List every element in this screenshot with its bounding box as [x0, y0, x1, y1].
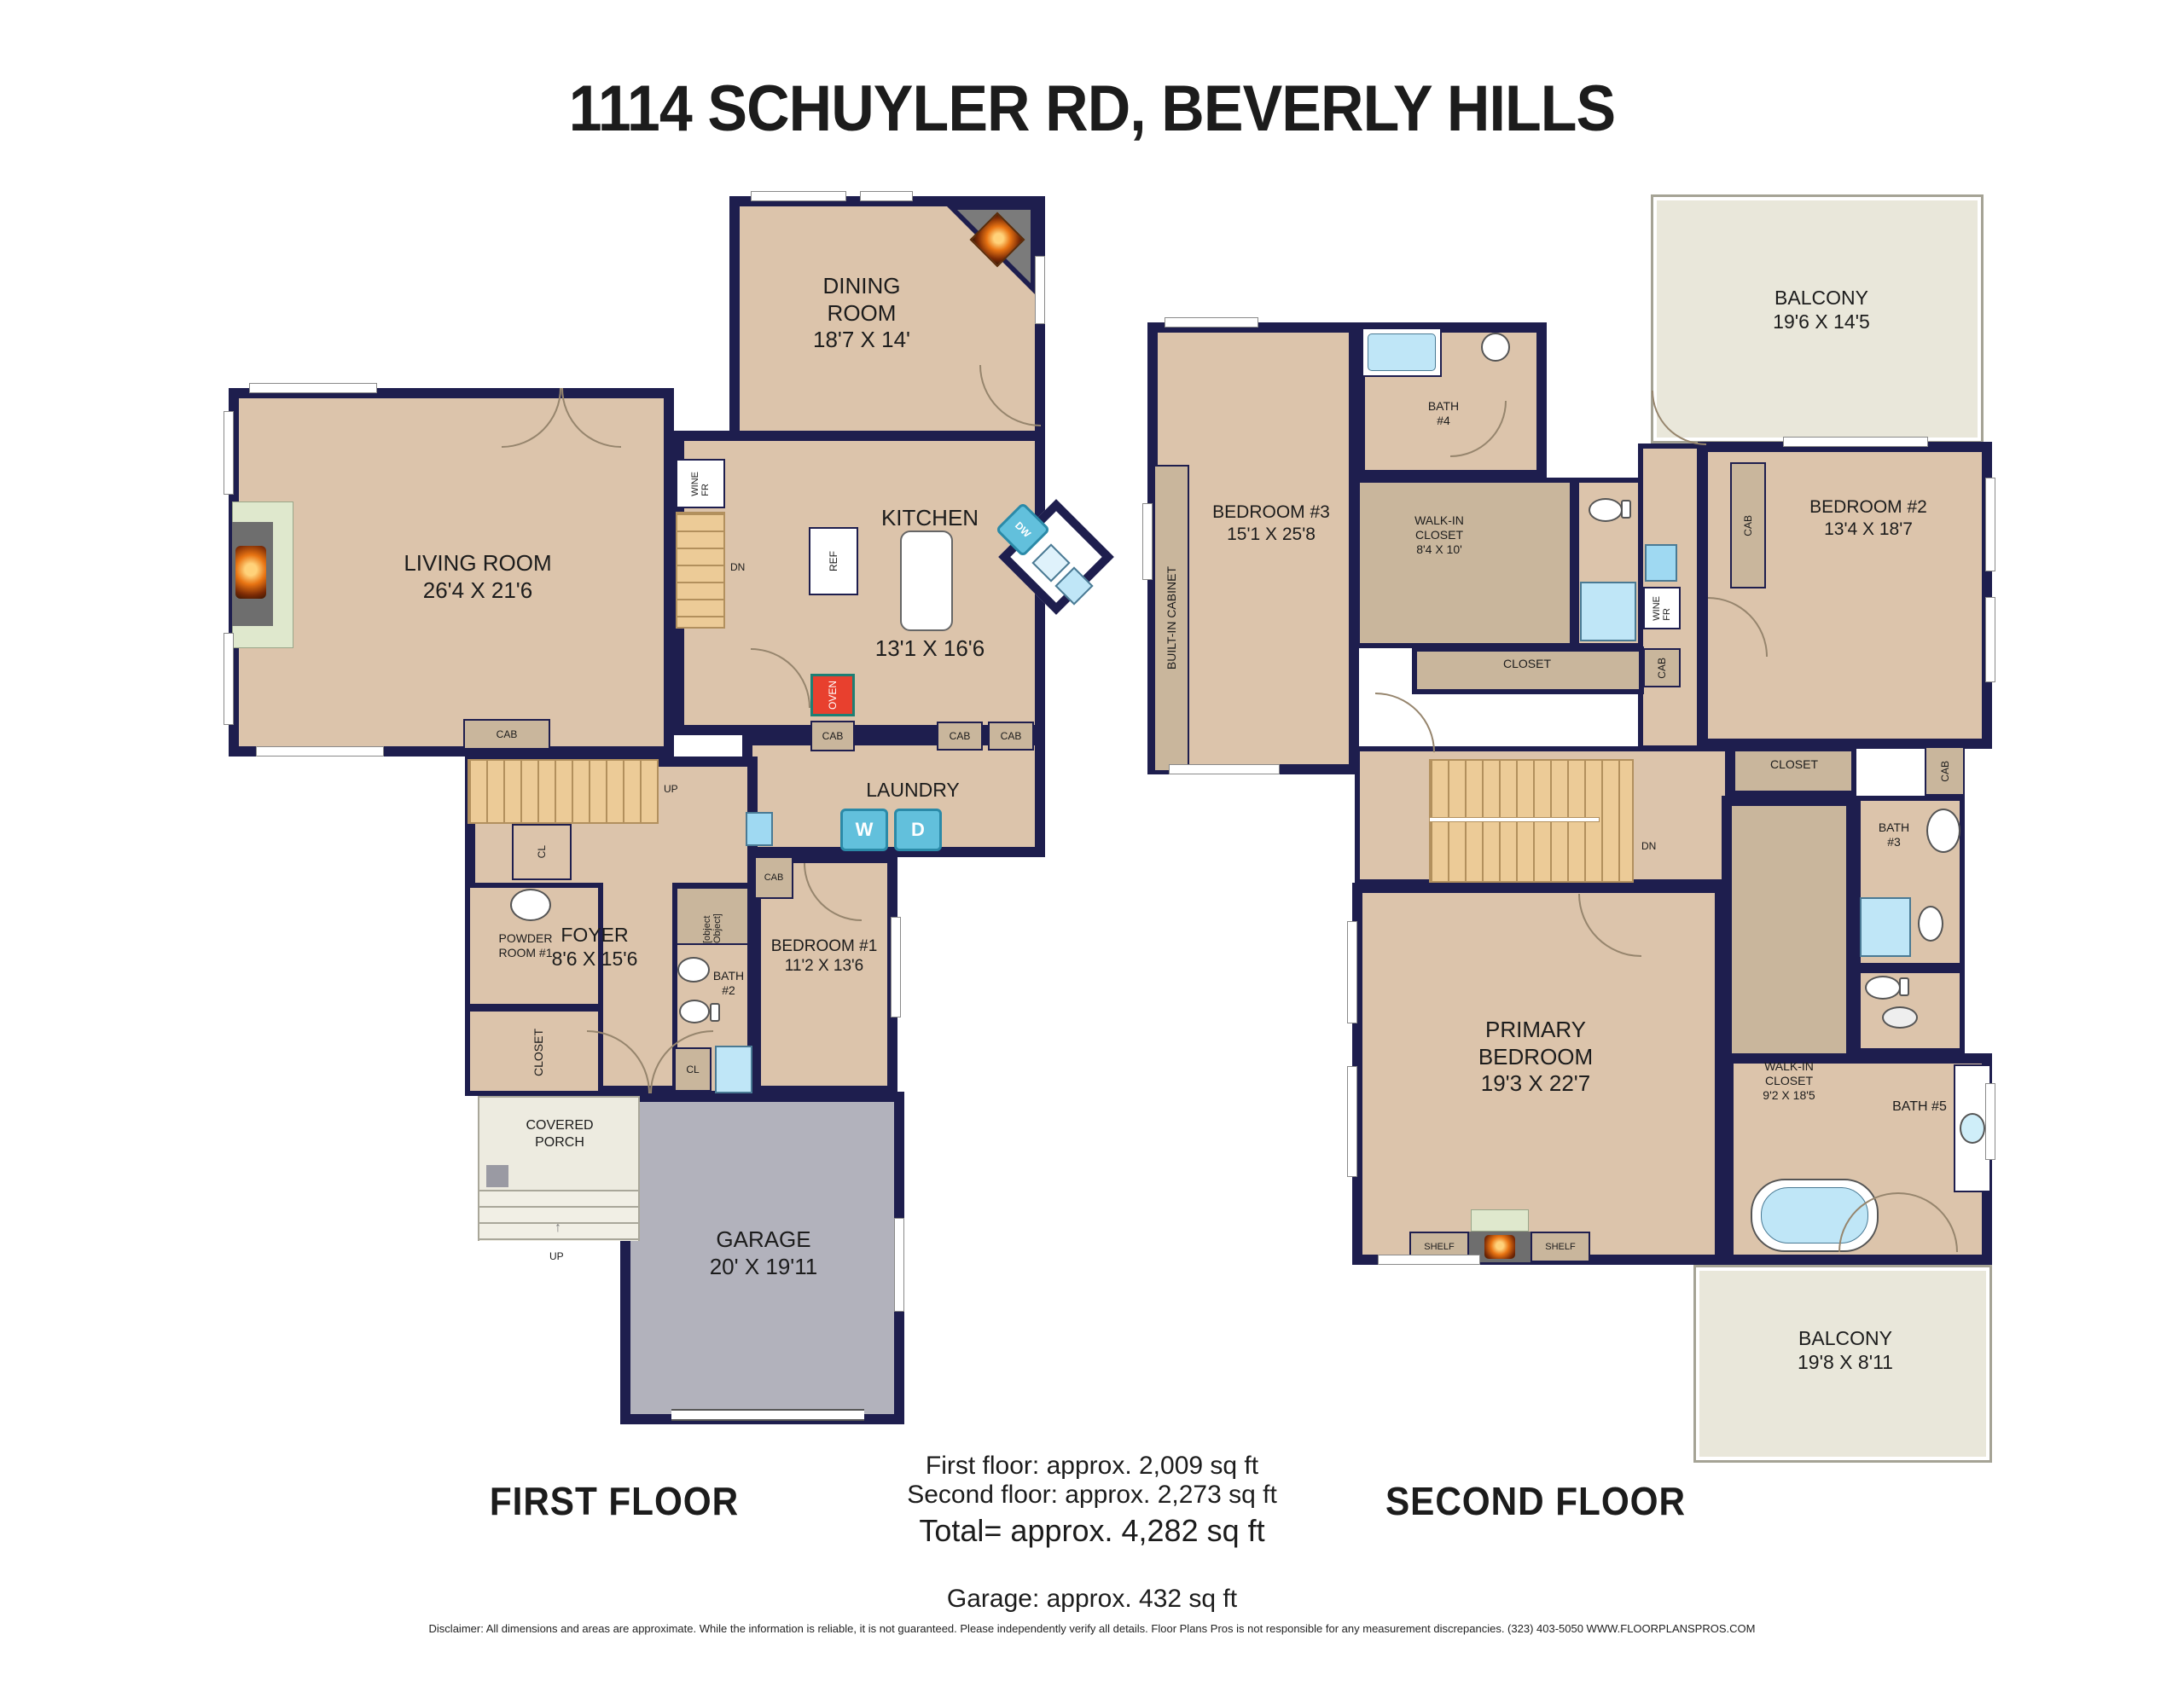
kitchen-island	[900, 530, 953, 631]
hall-sink-icon	[1645, 544, 1677, 582]
room-name: LAUNDRY	[866, 778, 960, 802]
shower-icon	[1860, 897, 1911, 957]
window	[894, 1218, 904, 1312]
room-name: BATH #4	[1428, 399, 1459, 428]
garage-area: Garage: approx. 432 sq ft	[819, 1585, 1365, 1614]
shower-icon	[715, 1046, 752, 1093]
room-dims: 15'1 X 25'8	[1227, 524, 1316, 546]
dn-label: DN	[730, 561, 745, 574]
floor-plan-page: 1114 SCHUYLER RD, BEVERLY HILLS DW REF O…	[0, 0, 2184, 1687]
walkin-label: [object Object]	[702, 889, 723, 943]
window	[1035, 256, 1045, 324]
shelf-label: SHELF	[1545, 1242, 1575, 1252]
total-area: Total= approx. 4,282 sq ft	[819, 1513, 1365, 1549]
washer: W	[840, 809, 888, 851]
oven: OVEN	[810, 674, 855, 716]
room-dims: 11'2 X 13'6	[785, 956, 863, 976]
dn-label: DN	[1641, 840, 1656, 853]
shelf-label: SHELF	[1424, 1242, 1454, 1252]
toilet-tank-icon	[710, 1003, 720, 1022]
closet-stair-label: CLOSET	[1740, 757, 1848, 772]
laundry-sink-icon	[746, 812, 773, 846]
cab-label: CAB	[1939, 761, 1951, 782]
window	[1347, 921, 1357, 1023]
room-name: WALK-IN CLOSET	[1764, 1059, 1814, 1088]
room-name: POWDER ROOM #1	[498, 931, 552, 960]
room-name: PRIMARY BEDROOM	[1478, 1017, 1593, 1070]
area-summary: First floor: approx. 2,009 sq ft Second …	[819, 1452, 1365, 1614]
room-walkin84	[1355, 478, 1575, 648]
cabinet: CAB	[1925, 746, 1965, 796]
room-name: BALCONY	[1774, 286, 1868, 310]
first-floor-area: First floor: approx. 2,009 sq ft	[819, 1452, 1365, 1481]
window	[751, 191, 846, 201]
window	[891, 917, 901, 1017]
wine-fridge: WINE FR	[1643, 587, 1681, 629]
room-dims: 9'2 X 18'5	[1763, 1088, 1815, 1103]
wine-fr-label: WINE FR	[1652, 596, 1672, 621]
up-label: UP	[664, 783, 678, 796]
shelf-right: SHELF	[1531, 1232, 1590, 1262]
first-floor-title: FIRST FLOOR	[457, 1477, 771, 1525]
bathtub-icon	[1362, 328, 1442, 377]
toilet-icon	[1589, 498, 1623, 522]
window	[1985, 597, 1995, 682]
cabinet: CAB	[463, 719, 550, 750]
balcony-bottom-label: BALCONY 19'8 X 8'11	[1773, 1326, 1918, 1374]
ref-label: REF	[828, 551, 839, 571]
room-name: BEDROOM #2	[1809, 496, 1927, 519]
walkin92-label: WALK-IN CLOSET 9'2 X 18'5	[1728, 1059, 1850, 1103]
stairs-landing-rail	[1429, 817, 1600, 822]
second-floor-title: SECOND FLOOR	[1347, 1477, 1724, 1525]
cab-label: CAB	[822, 730, 844, 742]
toilet-tank-icon	[1621, 500, 1631, 519]
room-dims: 18'7 X 14'	[813, 327, 910, 354]
cab-label: CAB	[1742, 515, 1754, 536]
bidet-icon	[1882, 1006, 1918, 1029]
closet-mid-label: CLOSET	[1450, 657, 1604, 671]
room-name: BATH #3	[1879, 820, 1909, 849]
bath5-sink-icon	[1960, 1113, 1985, 1144]
up-arrow-icon: ↑	[555, 1220, 561, 1237]
garage-label: GARAGE 20' X 19'11	[674, 1226, 853, 1280]
room-kitchen	[674, 431, 1045, 735]
room-name: COVERED PORCH	[526, 1117, 593, 1151]
hearth	[1471, 1209, 1529, 1232]
wine-fr-label: WINE FR	[690, 472, 711, 496]
shower-icon	[1580, 582, 1636, 641]
dryer-label: D	[911, 819, 925, 841]
room-dims: 13'4 X 18'7	[1824, 519, 1913, 541]
room-dims: 13'1 X 16'6	[875, 635, 985, 663]
toilet-tank-icon	[1899, 977, 1909, 996]
window	[249, 383, 377, 393]
dishwasher-label: DW	[1013, 519, 1033, 540]
door-arc	[1375, 693, 1435, 752]
walkin84-label: WALK-IN CLOSET 8'4 X 10'	[1375, 513, 1503, 557]
bath2-label: BATH #2	[701, 969, 756, 998]
closet-label-wrap: CLOSET	[515, 1017, 563, 1088]
window	[1169, 764, 1280, 774]
cabinet: CAB	[988, 722, 1034, 751]
room-dims: 19'3 X 22'7	[1481, 1070, 1590, 1098]
second-floor-area: Second floor: approx. 2,273 sq ft	[819, 1481, 1365, 1510]
porch-label: COVERED PORCH	[500, 1117, 619, 1151]
porch-up-label: UP	[549, 1250, 564, 1263]
cab-label: CAB	[764, 872, 784, 883]
room-name: GARAGE	[716, 1226, 810, 1254]
garage-door	[671, 1409, 864, 1421]
toilet-icon	[1865, 976, 1901, 1000]
disclaimer: Disclaimer: All dimensions and areas are…	[0, 1622, 2184, 1635]
window	[1378, 1255, 1480, 1265]
room-name: BEDROOM #3	[1212, 501, 1330, 524]
cl-label: CL	[536, 845, 548, 858]
cabinet: CAB	[1730, 462, 1766, 588]
living-label: LIVING ROOM 26'4 X 21'6	[341, 550, 614, 604]
closet-cl: CL	[512, 824, 572, 880]
window	[1142, 503, 1153, 580]
window	[1347, 1066, 1357, 1177]
powder-sink-icon	[510, 889, 551, 921]
toilet-icon	[679, 1000, 710, 1023]
cab-label: CAB	[497, 728, 518, 740]
toilet-icon	[1918, 906, 1943, 942]
cabinet: CAB	[1643, 648, 1681, 687]
laundry-label: LAUNDRY	[845, 778, 981, 802]
builtin-label: BUILT-IN CABINET	[1165, 566, 1178, 670]
window	[256, 746, 384, 757]
window	[1165, 317, 1258, 328]
window	[1985, 1083, 1995, 1160]
dining-label: DINING ROOM 18'7 X 14'	[768, 273, 955, 354]
cabinet: CAB	[937, 722, 983, 751]
stairs-down	[676, 512, 725, 629]
room-dims: 26'4 X 21'6	[423, 577, 532, 605]
kitchen-label: KITCHEN	[862, 505, 998, 532]
cab-label: CAB	[1001, 730, 1022, 742]
bedroom2-label: BEDROOM #2 13'4 X 18'7	[1770, 496, 1966, 540]
window	[1783, 437, 1928, 447]
primary-label: PRIMARY BEDROOM 19'3 X 22'7	[1425, 1017, 1647, 1098]
oven-label: OVEN	[827, 681, 839, 710]
builtin-cabinet: BUILT-IN CABINET	[1153, 465, 1189, 772]
room-name: BEDROOM #1	[771, 936, 878, 956]
refrigerator: REF	[809, 527, 858, 595]
room-dims: 8'4 X 10'	[1416, 542, 1462, 557]
bath3-label: BATH #3	[1867, 820, 1921, 849]
bath4-sink-icon	[1481, 333, 1510, 362]
cabinet: CAB	[754, 856, 793, 899]
cab-label: CAB	[950, 730, 971, 742]
fireplace-icon	[235, 546, 266, 599]
kitchen-dims: 13'1 X 16'6	[853, 635, 1007, 663]
wine-fridge: WINE FR	[676, 459, 725, 508]
window	[224, 411, 234, 495]
balcony-top-label: BALCONY 19'6 X 14'5	[1749, 286, 1894, 333]
room-dims: 19'8 X 8'11	[1798, 1350, 1893, 1374]
window	[224, 633, 234, 725]
washer-label: W	[856, 819, 874, 841]
bath3-sink-icon	[1926, 809, 1960, 853]
room-name: DINING ROOM	[823, 273, 901, 327]
room-name: LIVING ROOM	[404, 550, 551, 577]
walkin-closet-ff: [object Object]	[676, 887, 749, 945]
porch-post	[486, 1165, 508, 1187]
room-dims: 20' X 19'11	[710, 1254, 818, 1281]
stairs-up	[468, 759, 659, 824]
room-name: BALCONY	[1798, 1326, 1892, 1350]
window	[1985, 478, 1995, 571]
dryer: D	[894, 809, 942, 851]
bath4-label: BATH #4	[1409, 399, 1478, 428]
closet-label: CLOSET	[531, 1017, 546, 1088]
room-name: WALK-IN CLOSET	[1414, 513, 1464, 542]
bedroom3-label: BEDROOM #3 15'1 X 25'8	[1190, 501, 1352, 545]
cab-label: CAB	[1656, 658, 1668, 679]
bath5-label: BATH #5	[1864, 1099, 1975, 1116]
window	[860, 191, 913, 201]
fireplace-icon	[1484, 1235, 1515, 1259]
page-title: 1114 SCHUYLER RD, BEVERLY HILLS	[87, 72, 2096, 146]
cabinet: CAB	[810, 721, 855, 751]
powder-label: POWDER ROOM #1	[474, 931, 577, 960]
bedroom1-label: BEDROOM #1 11'2 X 13'6	[764, 936, 884, 976]
room-name: BATH #2	[713, 969, 744, 998]
room-name: KITCHEN	[881, 505, 979, 532]
room-dims: 19'6 X 14'5	[1773, 310, 1870, 333]
